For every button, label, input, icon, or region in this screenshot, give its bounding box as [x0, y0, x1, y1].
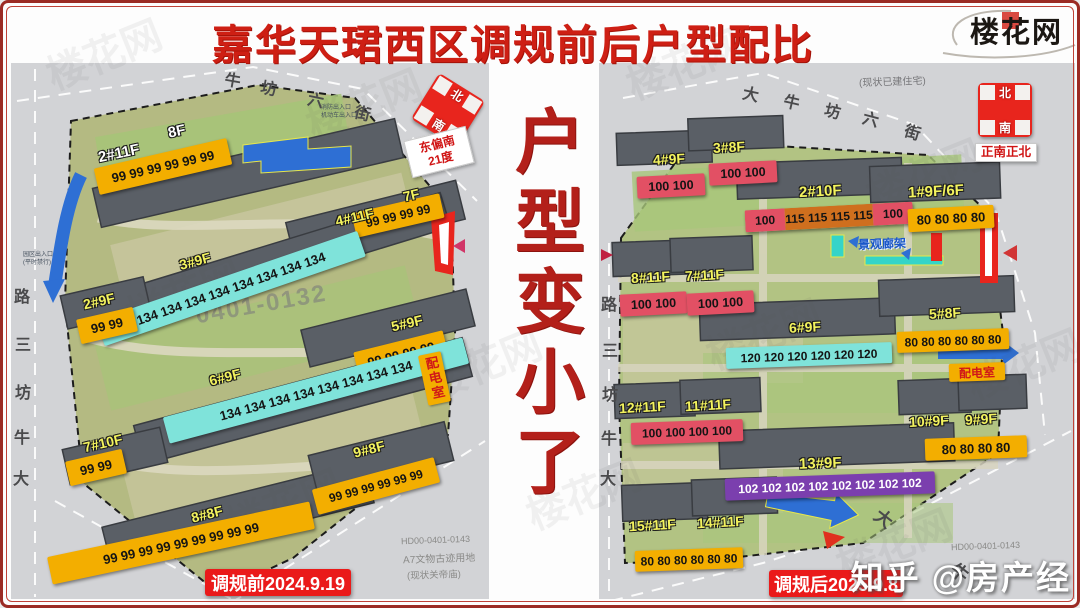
landscape-pergola-label: 景观廊架: [858, 234, 907, 253]
orientation-note-right: 正南正北: [975, 143, 1037, 162]
unit-size-band: 100 100: [619, 291, 687, 316]
landuse-note: A7文物古迹用地: [403, 549, 476, 567]
building-label: 6#9F: [789, 318, 822, 336]
building-label: 2#10F: [799, 182, 842, 201]
logo-text: 楼花网: [970, 17, 1063, 49]
compass-south-label: 南: [978, 119, 1032, 136]
gate-label: (平时禁行): [23, 257, 51, 266]
building-label: 15#11F: [629, 516, 676, 534]
unit-size-band: 100 100 100 100: [631, 419, 744, 445]
building-label: 13#9F: [799, 454, 842, 472]
building-label: 11#11F: [685, 396, 732, 414]
center-headline: 户型变小了: [495, 105, 591, 545]
unit-size-segment: 115 115 115 115: [784, 204, 873, 231]
compass-right: 北 南: [978, 83, 1032, 137]
unit-size-band: 100 100: [636, 173, 705, 199]
site-logo: 楼花网: [970, 9, 1063, 51]
street-name-char: 三: [15, 331, 31, 355]
street-name-char: 牛: [14, 424, 30, 448]
building-label: 10#9F: [909, 412, 949, 430]
before-date-label: 调规前2024.9.19: [205, 569, 351, 596]
zhihu-watermark: 知乎 @房产经: [851, 551, 1071, 599]
unit-size-band: 100 100: [708, 160, 777, 186]
building-label: 4#9F: [653, 150, 686, 168]
unit-size-band: 80 80 80 80: [925, 435, 1028, 461]
street-name-char: 大: [13, 465, 29, 489]
unit-size-band: 80 80 80 80: [907, 205, 994, 232]
building-label: 9#9F: [965, 410, 998, 428]
unit-size-band: 100 100: [686, 290, 754, 315]
building-label: 3#8F: [713, 138, 746, 156]
street-name-char: 三: [602, 337, 618, 361]
street-name-char: 牛: [601, 425, 617, 449]
unit-size-band: 80 80 80 80 80 80: [635, 547, 744, 572]
building-label: 8F: [166, 121, 187, 141]
site-plan-comparison: 楼花网 楼花网 楼花网 楼花网 楼花网 楼花网 楼花网 楼花网 楼花网 楼花网 …: [0, 0, 1080, 608]
building-label: 12#11F: [619, 398, 666, 416]
page-title: 嘉华天珺西区调规前后户型配比: [143, 11, 883, 71]
street-name-char: 坊: [15, 379, 31, 403]
unit-size-segment: 100: [745, 208, 786, 232]
building-label: 1#9F/6F: [908, 182, 965, 202]
gate-label: 机动车出入口: [321, 110, 357, 119]
street-name-char: 路: [14, 283, 30, 307]
street-name-char: 坊: [602, 381, 618, 405]
power-room-label: 配电室: [949, 362, 1006, 382]
compass-north-label: 北: [978, 84, 1032, 101]
building-label: 5#8F: [929, 304, 962, 322]
street-name-char: 大: [600, 465, 616, 489]
unit-size-band: 80 80 80 80 80 80: [897, 328, 1010, 353]
building-label: 7#11F: [685, 266, 725, 284]
building-label: 14#11F: [697, 513, 744, 531]
existing-housing-note: (现状已建住宅): [859, 72, 926, 89]
building-label: 8#11F: [631, 268, 671, 286]
street-name-char: 路: [601, 291, 617, 315]
status-note: (现状关帝庙): [407, 566, 461, 582]
